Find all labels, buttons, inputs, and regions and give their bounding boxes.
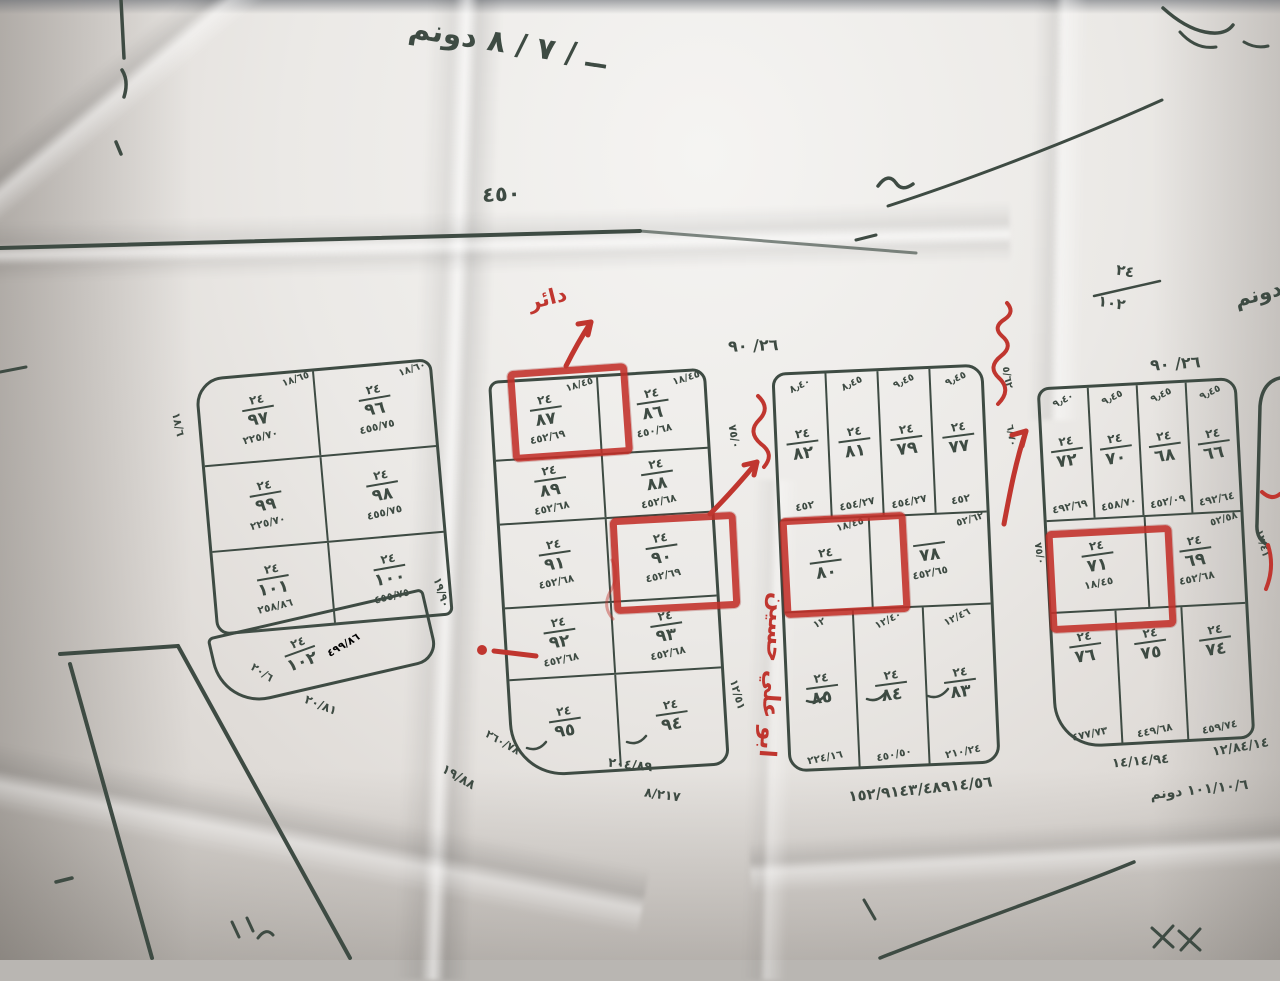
red-highlight-box-plot-87	[507, 363, 633, 462]
plot-area: ٤٤٩/٦٨	[1136, 721, 1174, 740]
plot-width: ٢٤	[950, 419, 966, 433]
plot-number: ٨٨	[646, 475, 669, 496]
plot-cell: ٩٫٤٥ ٢٤٦٦ ٤٩٢/٦٤	[1185, 380, 1241, 512]
plot-width: ٢٤	[380, 551, 397, 566]
red-highlight-box-plot-71	[1045, 525, 1176, 633]
plot-cell: ٢٤ ٩١ ٤٥٢/٦٨	[500, 519, 610, 607]
plot-cell: ٢٤٧٤ ٤٥٩/٧٤	[1180, 604, 1252, 741]
plot-number: ٧٩	[895, 439, 918, 459]
plot-number: ٩١	[543, 555, 566, 576]
plot-area: ٤٥٠/٥٠	[875, 745, 913, 764]
plot-width: ٢٤	[813, 670, 829, 684]
plot-number: ٩٣	[655, 626, 678, 647]
plot-number: ٨٢	[791, 444, 814, 464]
plot-number: ٧٦	[1074, 647, 1097, 668]
plot-cell: ٩٫٤٠ ٢٤٧٢ ٤٩٢/٦٩	[1040, 388, 1094, 520]
plot-width: ٢٤	[372, 468, 389, 483]
plot-number: ٧٨	[918, 546, 941, 566]
plot-top-label: ٥٢/٦٢	[955, 511, 985, 530]
plot-area: ٤٧٧/٧٣	[1071, 725, 1109, 744]
plot-number: ٧٧	[947, 437, 970, 457]
plot-top-label: ٨٫٤٥	[840, 374, 865, 394]
plot-number: ٩٤	[660, 715, 683, 736]
plot-top-label: ٩٫٤٥	[1100, 388, 1125, 408]
plot-width: ٢٤	[248, 392, 265, 407]
plot-width: ٢٤	[556, 704, 572, 718]
plot-number: ٦٨	[1153, 446, 1176, 467]
plot-area: ٤٥٢/٦٨	[649, 644, 687, 663]
plot-cell: ٢٤ ٨٩ ٤٥٢/٦٨	[496, 455, 605, 523]
plot-width: ٢٤	[846, 424, 862, 438]
plot-number: ٨٣	[949, 682, 972, 702]
plot-width: ٢٤	[1205, 426, 1221, 440]
plot-number: ٧٠	[1104, 449, 1127, 470]
plot-width: ٢٤	[794, 426, 810, 440]
plot-area: ٢٢٤/١٦	[806, 748, 844, 767]
plot-top-label: ٩٫٤٥	[1149, 386, 1174, 406]
plot-number: ٩٢	[548, 633, 571, 654]
plot-width: ٢٤	[952, 664, 968, 678]
plot-cell: ١٨/٦٠ ٢٤ ٩٦ ٤٥٥/٧٥	[312, 361, 436, 455]
plot-number: ٩٥	[554, 722, 577, 743]
road-width-number: ٤٥٠	[481, 181, 521, 207]
plot-top-label: ٨٫٤٠	[788, 376, 813, 396]
plot-cell: ٩٫٤٥ ٢٤٧٩ ٤٥٤/٢٧	[876, 369, 934, 515]
plot-width: ٢٤	[256, 478, 273, 493]
plot-area: ٤٥٠/٦٨	[635, 421, 673, 440]
plot-area: ٤٥٢/٦٨	[537, 572, 575, 591]
plot-top-label: ١٨/٦٥	[281, 370, 311, 390]
plot-area: ٤٥٢/٠٩	[1149, 492, 1187, 511]
plot-number: ٧٥	[1139, 644, 1162, 665]
plot-top-label: ٩٫٤٥	[892, 372, 917, 392]
plot-area: ٢٢٥/٧٠	[249, 513, 287, 533]
plot-cell: ٢٤ ٩٨ ٤٥٥/٧٥	[320, 447, 444, 541]
plot-area: ٤٥٢/٦٨	[639, 492, 677, 511]
plot-area: ٤٥٢/٦٨	[542, 650, 580, 669]
plot-width: ٢٤	[1107, 431, 1123, 445]
plot-width: ٢٤	[541, 463, 557, 477]
plot-width: ٢٤	[662, 697, 678, 711]
plot-cell: ١٢ ٢٤٨٥ ٢٢٤/١٦	[785, 611, 859, 772]
plot-width: ٢٤	[898, 422, 914, 436]
plot-width: ٢٤	[648, 457, 664, 471]
plot-cell: ٩٫٤٥ ٢٤٧٧ ٤٥٢	[928, 367, 986, 513]
plot-cell: ١٢/٤٦ ٢٤٨٣ ٢١٠/٢٤	[921, 604, 997, 765]
plot-area: ٤٥٥/٧٥	[358, 417, 396, 437]
plot-number: ٨٦	[641, 404, 664, 425]
plot-area: ٤٥٢	[795, 499, 816, 515]
plot-width: ٢٤	[365, 382, 382, 397]
plot-area: ٢١٠/٢٤	[945, 742, 983, 761]
plot-top-label: ٩٫٤٠	[1052, 391, 1077, 411]
red-highlight-box-plot-80	[779, 512, 910, 618]
plot-area: ٤٥٤/٢٧	[838, 495, 876, 514]
plot-area: ٤٥٤/٢٧	[890, 492, 928, 511]
plot-cell: ٨٫٤٠ ٢٤٨٢ ٤٥٢	[775, 373, 831, 519]
plot-area: ٤٥٨/٧٠	[1100, 495, 1138, 514]
plot-area: ٤٥٢	[950, 492, 971, 508]
plot-area: ٤٥٩/٧٤	[1201, 718, 1239, 737]
plot-number: ٦٦	[1202, 444, 1225, 465]
plot-top-label: ٩٫٤٥	[1198, 383, 1223, 403]
plot-area: ٤٥٢/٦٥	[912, 564, 950, 583]
plot-cell: ٢٤ ٨٨ ٤٥٢/٦٨	[601, 449, 712, 517]
plot-top-label: ٥٢/٥٨	[1209, 510, 1239, 529]
plot-width: ٢٤	[550, 615, 566, 629]
plot-top-label: ١٨/٦٠	[397, 360, 427, 380]
plot-cell: ٢٤ ٩٢ ٤٥٢/٦٨	[505, 603, 614, 679]
plot-cell: ٩٫٤٥ ٢٤٦٨ ٤٥٢/٠٩	[1136, 383, 1192, 515]
plot-number: ٩٩	[254, 495, 278, 516]
plot-width: ٢٤	[1058, 434, 1074, 448]
plot-area: ٤٥٥/٧٥	[365, 503, 403, 523]
plot-area: ٤٩٢/٦٩	[1051, 497, 1089, 516]
plot-number: ٨٩	[539, 481, 562, 502]
plot-number: ٨١	[843, 442, 866, 462]
plot-number: ٨٥	[811, 688, 834, 708]
plot-cell: ٢٤ ٩٩ ٢٢٥/٧٠	[205, 457, 327, 551]
plot-width: ٢٤	[1186, 533, 1202, 547]
plot-top-label: ١٢	[811, 616, 827, 631]
plot-top-label: ٩٫٤٥	[944, 369, 969, 389]
plot-cell: ٢٤ ٩٥	[509, 675, 619, 773]
red-highlight-box-plot-90	[610, 512, 741, 614]
plot-number: ٦٩	[1184, 551, 1207, 572]
plot-width: ٢٤	[882, 667, 898, 681]
plot-number: ٧٢	[1056, 451, 1079, 472]
plot-number: ٧٤	[1204, 640, 1227, 661]
plot-area: ٢٢٥/٧٠	[241, 427, 279, 447]
plot-number: ٩٦	[363, 400, 387, 421]
plot-top-label: ١٨/٤٥	[671, 369, 701, 388]
plot-number: ٩٨	[371, 485, 395, 506]
plot-cell: ٩٫٤٥ ٢٤٧٠ ٤٥٨/٧٠	[1087, 385, 1143, 517]
plot-width: ٢٤	[545, 537, 561, 551]
plot-cell: ١٨/٦٥ ٢٤ ٩٧ ٢٢٥/٧٠	[197, 372, 319, 466]
plot-cell: ١٢/٤٠ ٢٤٨٤ ٤٥٠/٥٠	[852, 607, 928, 768]
plot-area: ٤٥٢/٦٨	[533, 499, 571, 518]
plot-cell: ٢٤ ٩٤	[614, 668, 726, 766]
plot-width: ٢٤	[263, 562, 280, 577]
plot-cell: ٨٫٤٥ ٢٤٨١ ٤٥٤/٢٧	[824, 371, 882, 517]
plot-area: ٤٩٩/٨٦	[325, 631, 362, 660]
plot-width: ٢٤	[643, 386, 659, 400]
plot-number: ٨٤	[880, 685, 903, 705]
plot-number: ٩٧	[247, 410, 271, 431]
plot-width: ٢٤	[1207, 622, 1223, 636]
plot-area: ٤٥٢/٦٨	[1178, 569, 1216, 588]
plot-top-label: ١٢/٤٦	[943, 606, 973, 628]
plot-width: ٢٤	[1156, 428, 1172, 442]
block-d-title: ٢٦/ ٩٠	[1149, 352, 1201, 374]
plot-area: ٤٩٢/٦٤	[1197, 490, 1235, 509]
block-c-title: ٢٦/ ٩٠	[728, 335, 779, 356]
corner-fraction-numerator: ٢٤	[1115, 261, 1136, 282]
